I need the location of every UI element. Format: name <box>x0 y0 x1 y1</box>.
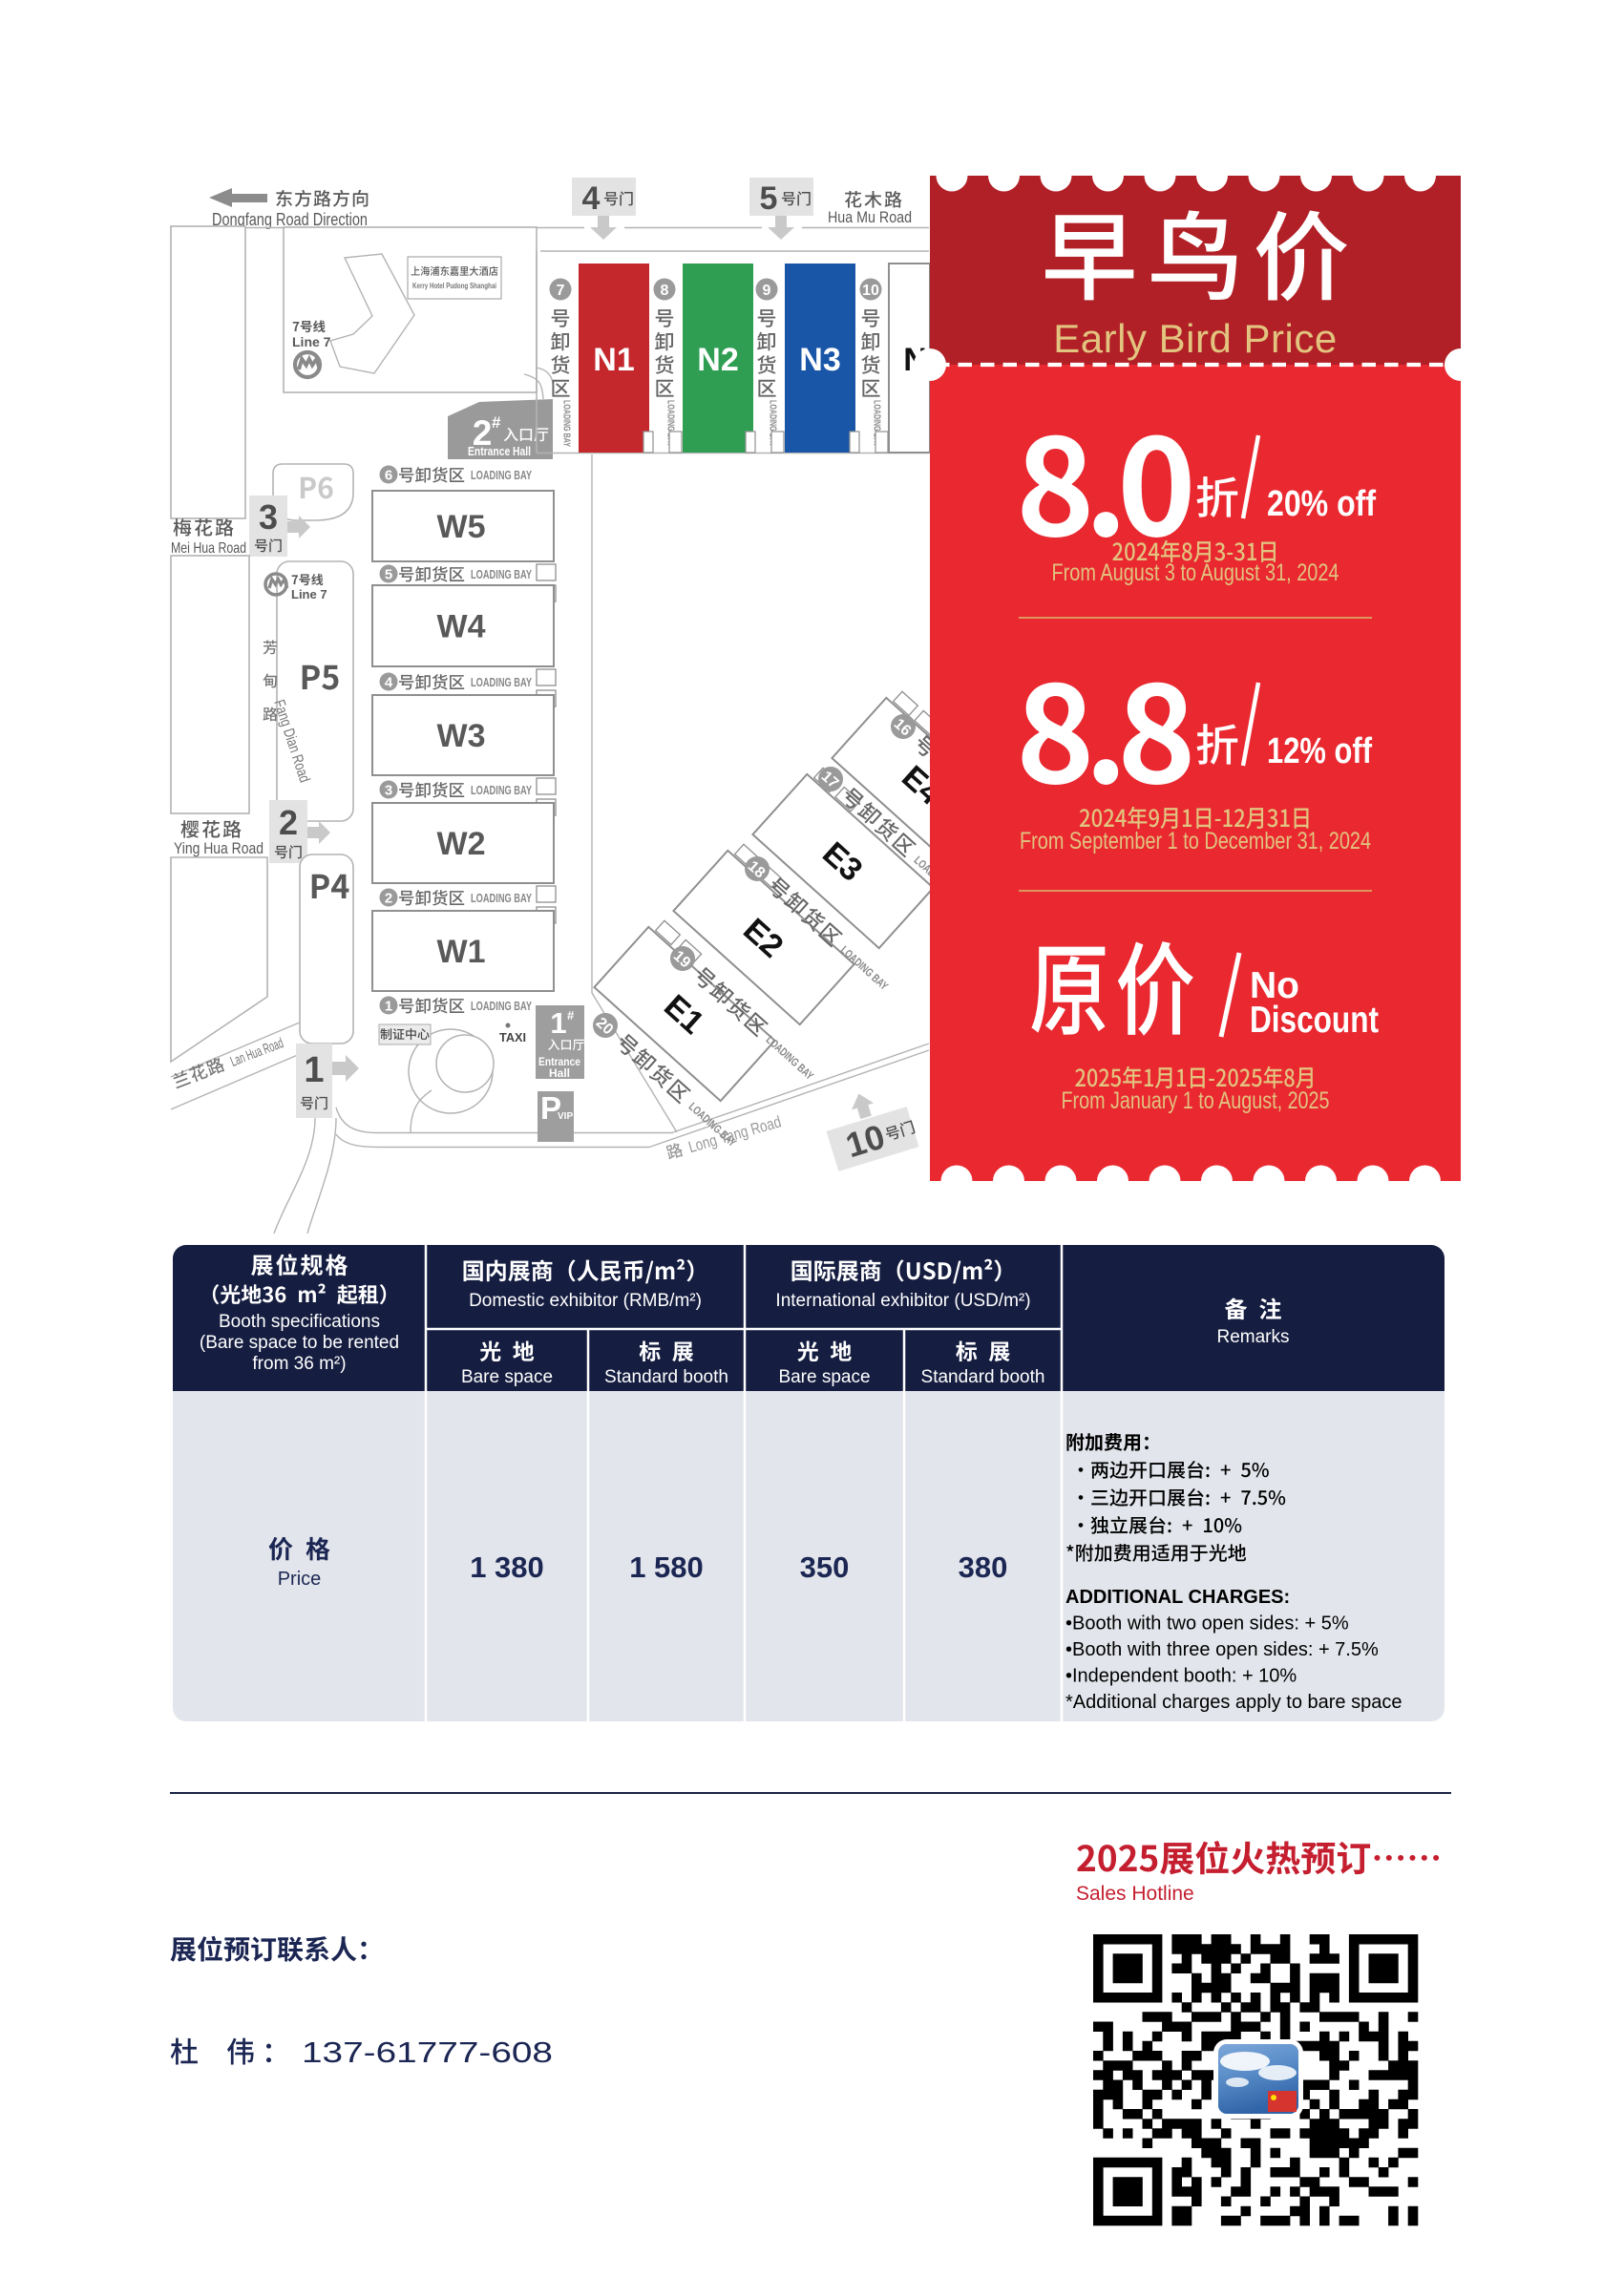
svg-text:Hua Mu Road: Hua Mu Road <box>828 208 912 226</box>
svg-text:N3: N3 <box>799 342 840 378</box>
svg-text:Bare space: Bare space <box>461 1367 553 1387</box>
svg-text:W1: W1 <box>437 934 486 970</box>
svg-text:From September 1 to December 3: From September 1 to December 31, 2024 <box>1020 828 1371 854</box>
svg-text:2: 2 <box>385 891 392 907</box>
svg-text:Price: Price <box>278 1569 322 1590</box>
svg-text:TAXI: TAXI <box>499 1030 526 1044</box>
svg-text:Line 7: Line 7 <box>291 587 327 601</box>
svg-text:LOADING BAY: LOADING BAY <box>471 891 532 905</box>
svg-text:Early Bird Price: Early Bird Price <box>1053 316 1337 361</box>
svg-text:1: 1 <box>304 1050 324 1090</box>
svg-text:9: 9 <box>763 283 771 299</box>
svg-text:from 36 m²): from 36 m²) <box>252 1354 346 1374</box>
svg-text:Bare space: Bare space <box>778 1367 870 1387</box>
svg-text:From January 1 to August, 2025: From January 1 to August, 2025 <box>1062 1087 1330 1114</box>
svg-text:•Booth with three open sides:: •Booth with three open sides: + 7.5% <box>1065 1639 1379 1660</box>
svg-text:ADDITIONAL CHARGES:: ADDITIONAL CHARGES: <box>1065 1587 1290 1608</box>
svg-text:350: 350 <box>800 1550 850 1584</box>
svg-text:5: 5 <box>385 567 392 583</box>
svg-text:5: 5 <box>760 180 778 217</box>
svg-text:W5: W5 <box>437 509 486 545</box>
svg-text:12% off: 12% off <box>1267 731 1372 771</box>
svg-text:1: 1 <box>550 1006 566 1040</box>
svg-text:1: 1 <box>385 999 392 1015</box>
svg-text:#: # <box>492 413 501 432</box>
svg-text:VIP: VIP <box>558 1111 573 1122</box>
svg-text:Domestic exhibitor (RMB/m²): Domestic exhibitor (RMB/m²) <box>469 1291 702 1311</box>
svg-text:#: # <box>567 1008 575 1023</box>
svg-text:W2: W2 <box>437 826 486 862</box>
svg-text:3: 3 <box>385 783 392 799</box>
svg-text:N2: N2 <box>697 342 738 378</box>
svg-text:4: 4 <box>385 675 393 691</box>
svg-text:Line 7: Line 7 <box>292 334 331 349</box>
svg-text:Standard booth: Standard booth <box>604 1367 728 1387</box>
svg-text:Booth specifications: Booth specifications <box>219 1312 380 1332</box>
svg-text:Kerry Hotel Pudong Shanghai: Kerry Hotel Pudong Shanghai <box>412 281 496 290</box>
svg-text:W3: W3 <box>437 718 486 754</box>
svg-text:8: 8 <box>661 283 669 299</box>
svg-text:Discount: Discount <box>1250 1000 1379 1041</box>
svg-text:*Additional charges apply to b: *Additional charges apply to bare space <box>1065 1692 1402 1713</box>
svg-text:LOADING BAY: LOADING BAY <box>471 567 532 581</box>
svg-text:(Bare space to be rented: (Bare space to be rented <box>200 1333 399 1353</box>
svg-text:N1: N1 <box>593 342 634 378</box>
svg-text:137-61777-608: 137-61777-608 <box>302 2035 553 2069</box>
svg-text:W4: W4 <box>437 609 486 645</box>
svg-text:380: 380 <box>959 1550 1008 1584</box>
svg-text:Ying Hua Road: Ying Hua Road <box>174 839 264 857</box>
svg-text:LOADING BAY: LOADING BAY <box>471 999 532 1013</box>
svg-text:From August 3 to August 31, 20: From August 3 to August 31, 2024 <box>1052 559 1339 586</box>
svg-text:4: 4 <box>582 180 601 217</box>
svg-text:LOADING BAY: LOADING BAY <box>471 468 532 482</box>
svg-text:1 580: 1 580 <box>629 1550 704 1584</box>
svg-text:LOADING BAY: LOADING BAY <box>471 783 532 797</box>
svg-text:Remarks: Remarks <box>1216 1327 1289 1347</box>
svg-text:LOADING BAY: LOADING BAY <box>561 400 572 447</box>
svg-text:3: 3 <box>259 497 278 537</box>
svg-text:Mei Hua Road: Mei Hua Road <box>171 540 246 557</box>
svg-text:International exhibitor (USD/m: International exhibitor (USD/m²) <box>775 1291 1030 1311</box>
svg-text:6: 6 <box>385 468 392 484</box>
svg-text:Entrance Hall: Entrance Hall <box>468 444 531 458</box>
svg-text:Standard booth: Standard booth <box>921 1367 1045 1387</box>
svg-text:2: 2 <box>279 803 298 842</box>
svg-text:Hall: Hall <box>549 1066 570 1080</box>
svg-text:7: 7 <box>557 283 565 299</box>
svg-text:Sales Hotline: Sales Hotline <box>1076 1883 1194 1905</box>
svg-text:•Booth with two open sides: +: •Booth with two open sides: + 5% <box>1065 1614 1349 1635</box>
svg-text:LOADING BAY: LOADING BAY <box>471 675 532 689</box>
svg-text:1 380: 1 380 <box>470 1550 544 1584</box>
svg-text:•Independent booth: + 10%: •Independent booth: + 10% <box>1065 1666 1297 1687</box>
svg-text:10: 10 <box>862 283 879 299</box>
svg-text:20% off: 20% off <box>1267 484 1376 524</box>
